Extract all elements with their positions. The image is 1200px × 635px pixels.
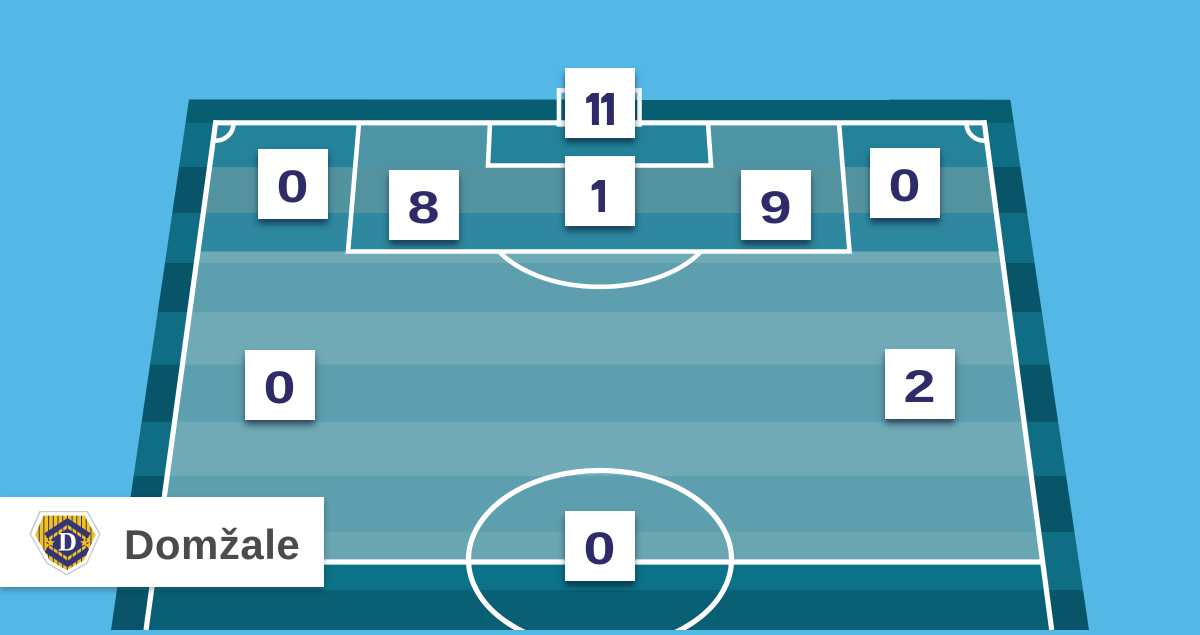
svg-text:D: D xyxy=(58,528,77,557)
